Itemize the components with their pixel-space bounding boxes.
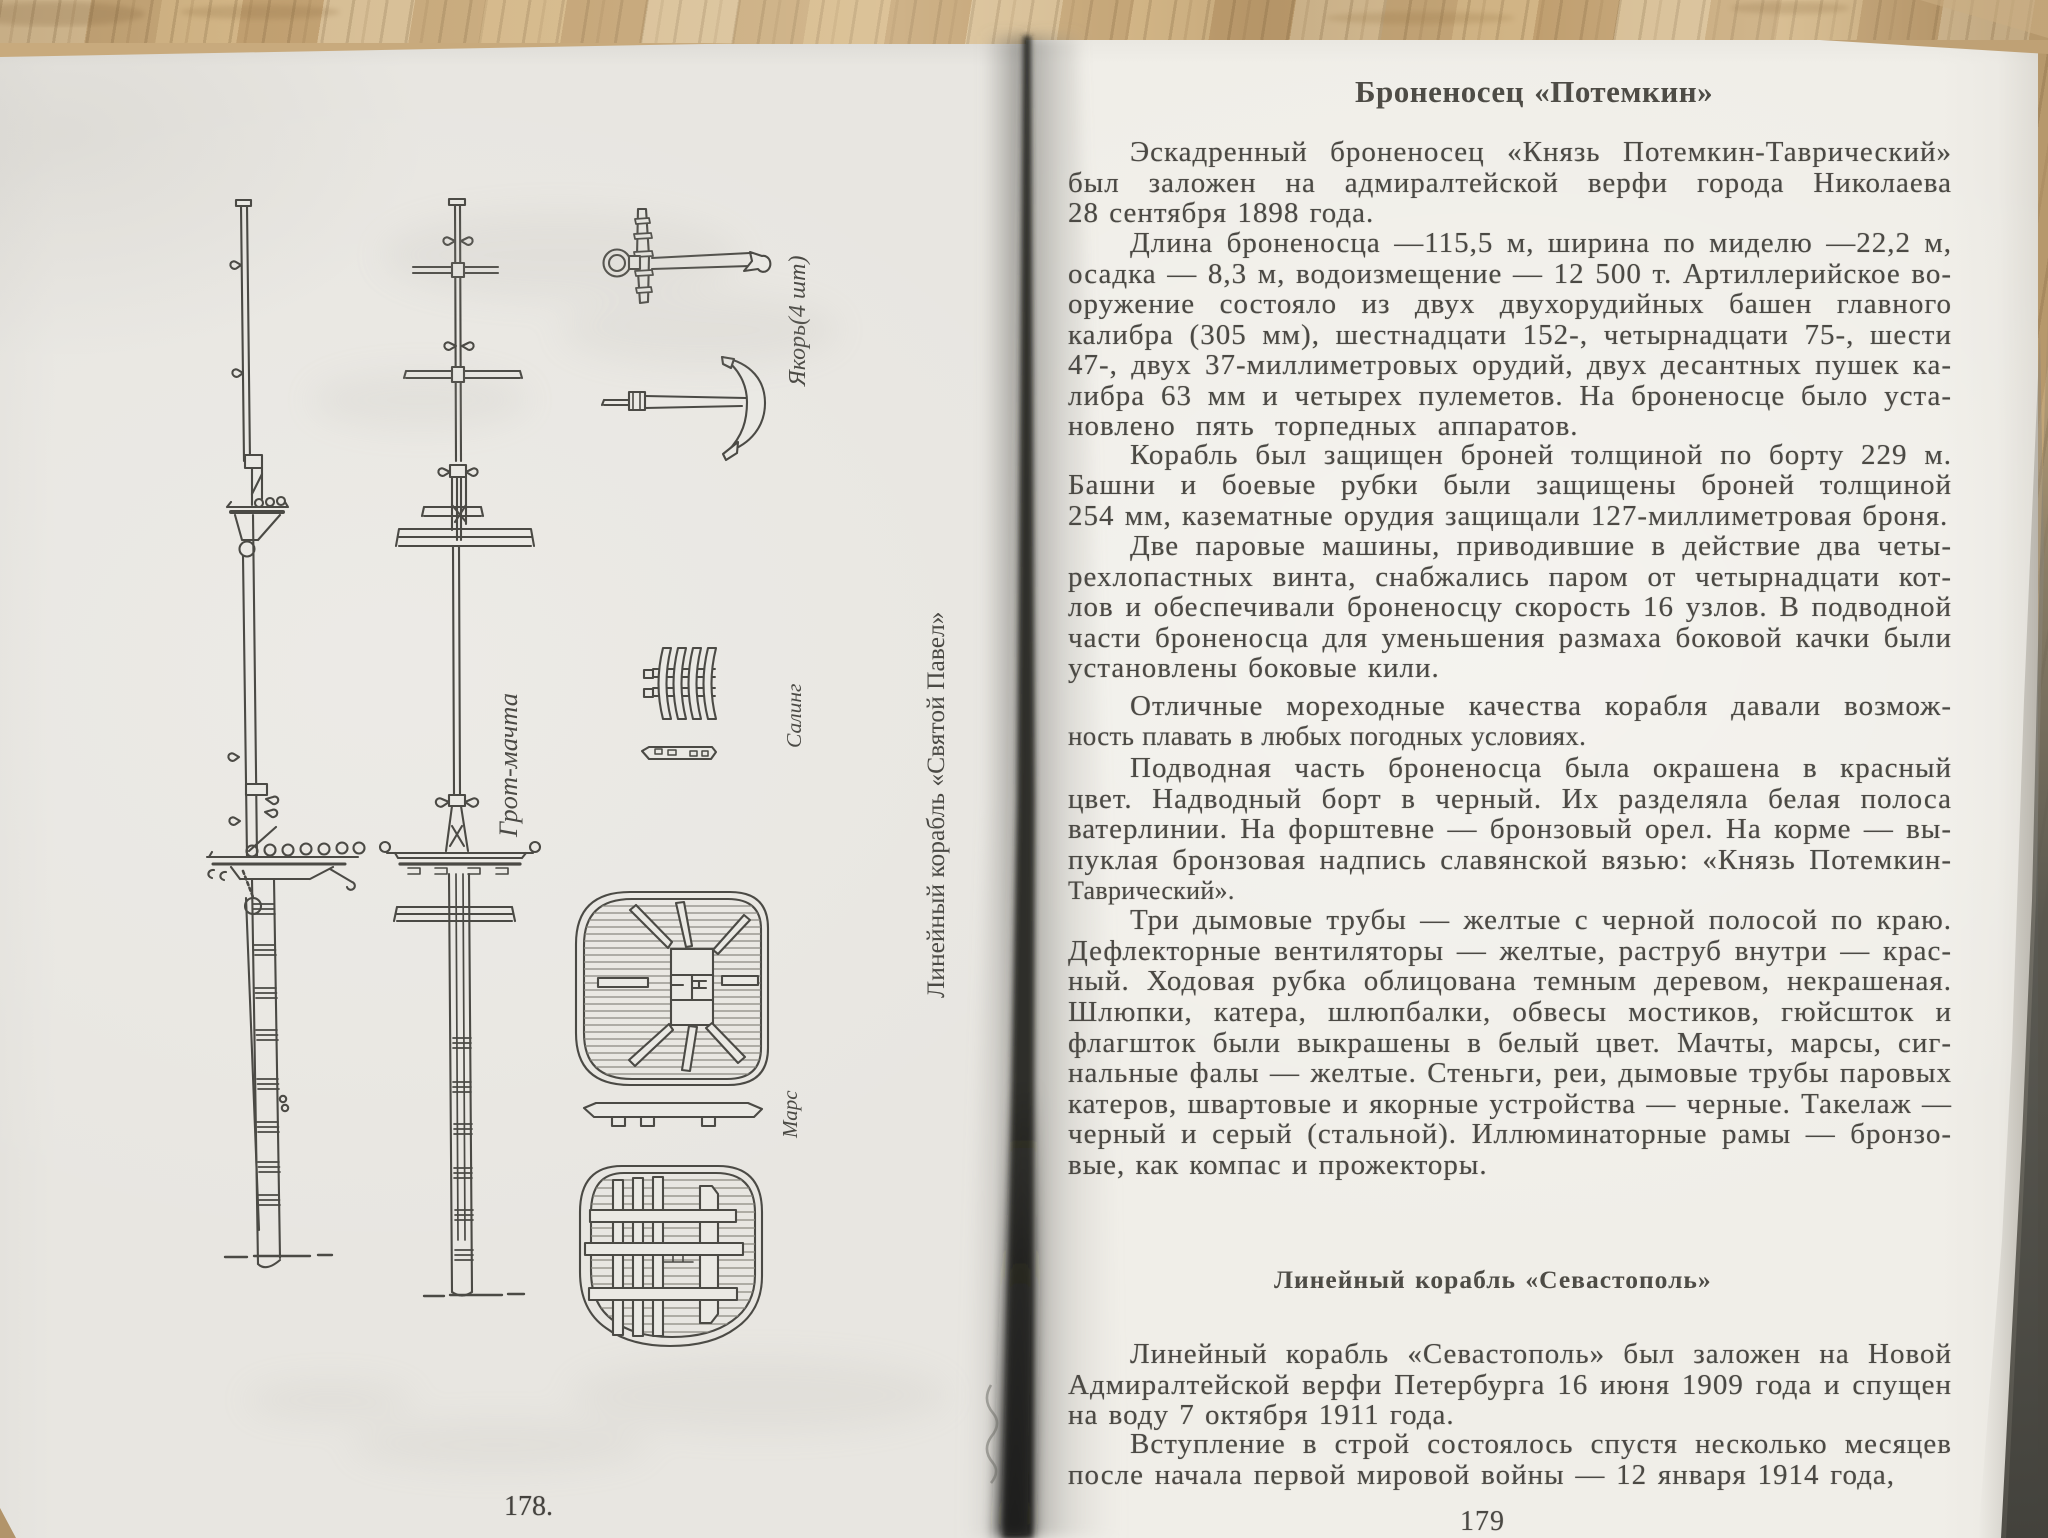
svg-text:Грот-мачта: Грот-мачта xyxy=(493,693,523,838)
svg-text:Марс: Марс xyxy=(778,1090,802,1139)
svg-text:Салинг: Салинг xyxy=(782,684,806,748)
svg-text:Линейный корабль «Святой Павел: Линейный корабль «Святой Павел» xyxy=(921,611,950,998)
